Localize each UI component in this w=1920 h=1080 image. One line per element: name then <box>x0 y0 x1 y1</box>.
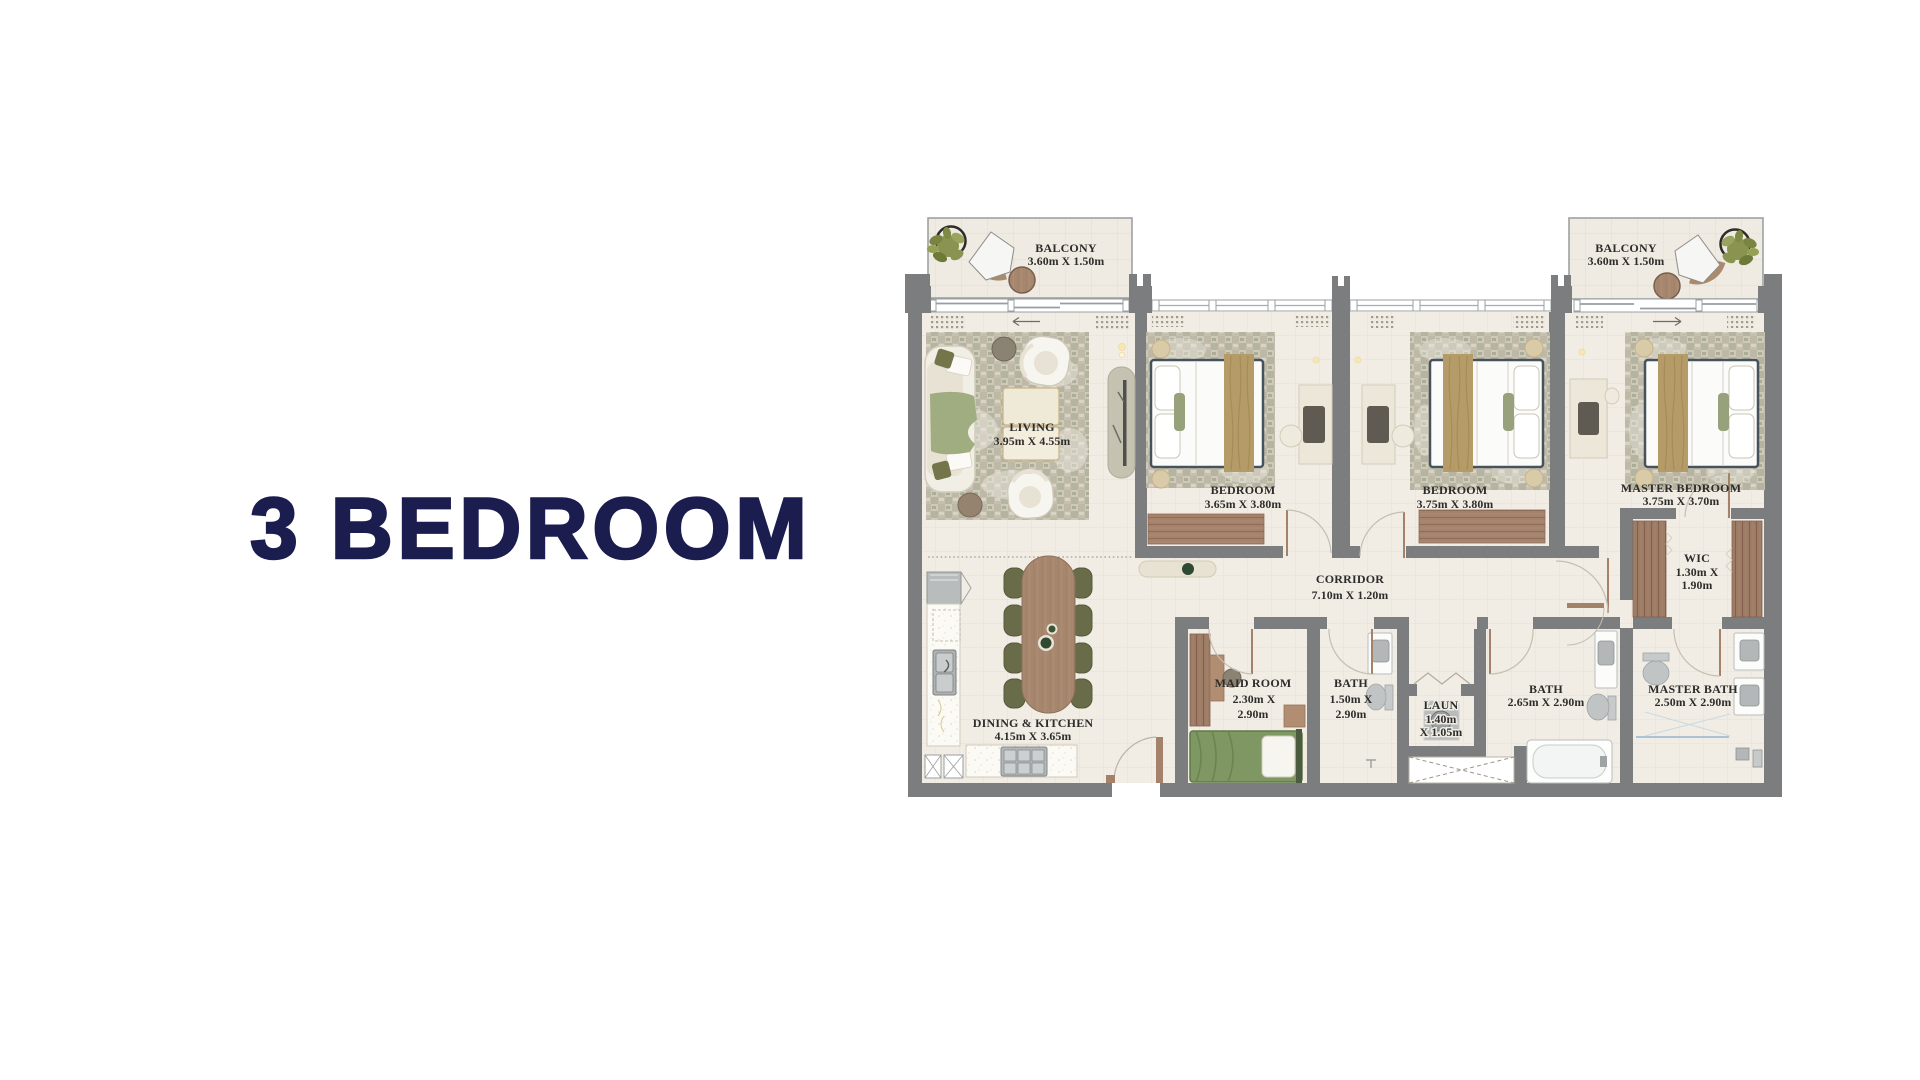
svg-text:1.40m: 1.40m <box>1426 712 1457 726</box>
svg-text:1.50m X: 1.50m X <box>1330 692 1373 706</box>
svg-text:MASTER BATH: MASTER BATH <box>1648 682 1738 696</box>
svg-text:BALCONY: BALCONY <box>1035 241 1097 255</box>
svg-text:LAUN: LAUN <box>1424 698 1459 712</box>
svg-text:3.60m X 1.50m: 3.60m X 1.50m <box>1588 254 1665 268</box>
svg-text:1.90m: 1.90m <box>1682 578 1713 592</box>
svg-text:4.15m X 3.65m: 4.15m X 3.65m <box>995 729 1072 743</box>
svg-text:3.65m X 3.80m: 3.65m X 3.80m <box>1205 497 1282 511</box>
svg-text:1.30m X: 1.30m X <box>1676 565 1719 579</box>
svg-text:BATH: BATH <box>1334 676 1368 690</box>
svg-text:BALCONY: BALCONY <box>1595 241 1657 255</box>
svg-text:DINING & KITCHEN: DINING & KITCHEN <box>973 716 1094 730</box>
svg-text:LIVING: LIVING <box>1009 420 1054 434</box>
svg-text:3.95m X 4.55m: 3.95m X 4.55m <box>994 434 1071 448</box>
svg-text:3.75m X 3.80m: 3.75m X 3.80m <box>1417 497 1494 511</box>
svg-text:MASTER BEDROOM: MASTER BEDROOM <box>1621 481 1741 495</box>
svg-text:BATH: BATH <box>1529 682 1563 696</box>
svg-text:3.75m X 3.70m: 3.75m X 3.70m <box>1643 494 1720 508</box>
svg-text:BEDROOM: BEDROOM <box>1211 483 1276 497</box>
svg-text:BEDROOM: BEDROOM <box>1423 483 1488 497</box>
svg-text:WIC: WIC <box>1684 551 1710 565</box>
svg-text:CORRIDOR: CORRIDOR <box>1316 572 1384 586</box>
svg-text:MAID ROOM: MAID ROOM <box>1215 676 1292 690</box>
svg-text:X 1.05m: X 1.05m <box>1420 725 1463 739</box>
svg-text:2.65m X 2.90m: 2.65m X 2.90m <box>1508 695 1585 709</box>
svg-text:2.50m X 2.90m: 2.50m X 2.90m <box>1655 695 1732 709</box>
svg-text:2.90m: 2.90m <box>1238 707 1269 721</box>
svg-text:7.10m X 1.20m: 7.10m X 1.20m <box>1312 588 1389 602</box>
svg-text:2.90m: 2.90m <box>1336 707 1367 721</box>
svg-text:2.30m X: 2.30m X <box>1233 692 1276 706</box>
svg-text:3 BEDROOM: 3 BEDROOM <box>250 481 811 577</box>
svg-text:3.60m X 1.50m: 3.60m X 1.50m <box>1028 254 1105 268</box>
